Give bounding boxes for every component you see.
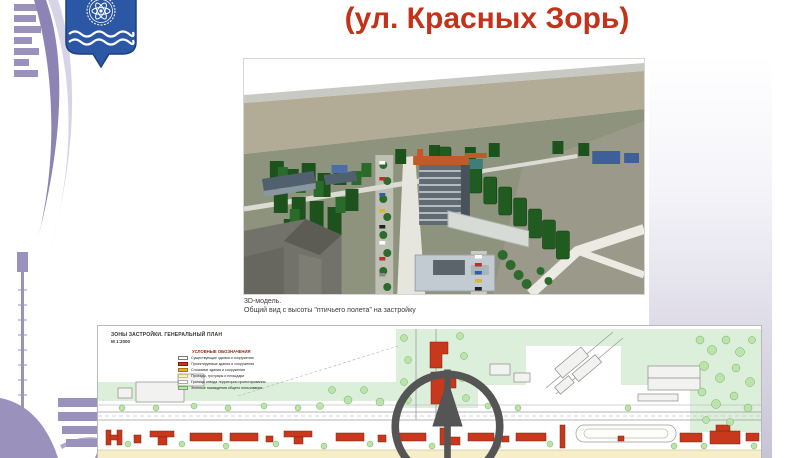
top-bars-decoration xyxy=(14,4,41,77)
render-3d-image xyxy=(244,59,644,294)
legend-row: Сносимые здания и сооружения xyxy=(178,368,298,372)
legend-row: Проезды, тротуары и площадки xyxy=(178,374,298,378)
legend-swatch-boundary xyxy=(178,380,188,384)
tower-decoration xyxy=(17,252,28,428)
swoosh-decoration xyxy=(34,0,59,238)
legend-row: Граница отвода территории проектирования xyxy=(178,380,298,384)
legend-title: УСЛОВНЫЕ ОБОЗНАЧЕНИЯ xyxy=(192,349,298,354)
legend-swatch-driveways xyxy=(178,374,188,378)
legend-swatch-demolished xyxy=(178,368,188,372)
plan-title: ЗОНЫ ЗАСТРОЙКИ. ГЕНЕРАЛЬНЫЙ ПЛАН xyxy=(111,332,222,338)
legend-label: Существующие здания и сооружения xyxy=(191,356,254,360)
legend-swatch-projected xyxy=(178,362,188,366)
dark-building xyxy=(244,219,342,294)
plan-annotations: ЗОНЫ ЗАСТРОЙКИ. ГЕНЕРАЛЬНЫЙ ПЛАН М 1:200… xyxy=(98,326,761,458)
legend-row: Зеленые насаждения общего пользования xyxy=(178,386,298,390)
legend-label: Проектируемые здания и сооружения xyxy=(191,362,254,366)
render-3d-figure xyxy=(243,58,645,295)
legend-label: Граница отвода территории проектирования xyxy=(191,380,265,384)
legend-label: Сносимые здания и сооружения xyxy=(191,368,245,372)
render-3d-caption: 3D-модель. Общий вид с высоты "птичьего … xyxy=(244,297,644,315)
presentation-slide: (ул. Красных Зорь) xyxy=(0,0,792,458)
legend-row: Проектируемые здания и сооружения xyxy=(178,362,298,366)
legend-label: Зеленые насаждения общего пользования xyxy=(191,386,262,390)
legend-swatch-existing xyxy=(178,356,188,360)
caption-line-1: 3D-модель. xyxy=(244,297,644,306)
general-plan-figure: ЗОНЫ ЗАСТРОЙКИ. ГЕНЕРАЛЬНЫЙ ПЛАН М 1:200… xyxy=(97,325,762,458)
slide-title: (ул. Красных Зорь) xyxy=(272,2,702,36)
legend-swatch-greenery xyxy=(178,386,188,390)
plan-legend: УСЛОВНЫЕ ОБОЗНАЧЕНИЯ Существующие здания… xyxy=(178,349,298,392)
legend-row: Существующие здания и сооружения xyxy=(178,356,298,360)
legend-label: Проезды, тротуары и площадки xyxy=(191,374,244,378)
obninsk-coat-of-arms xyxy=(64,0,138,70)
center-building xyxy=(415,255,495,291)
plan-scale: М 1:2000 xyxy=(111,339,130,344)
caption-line-2: Общий вид с высоты "птичьего полета" на … xyxy=(244,306,644,315)
